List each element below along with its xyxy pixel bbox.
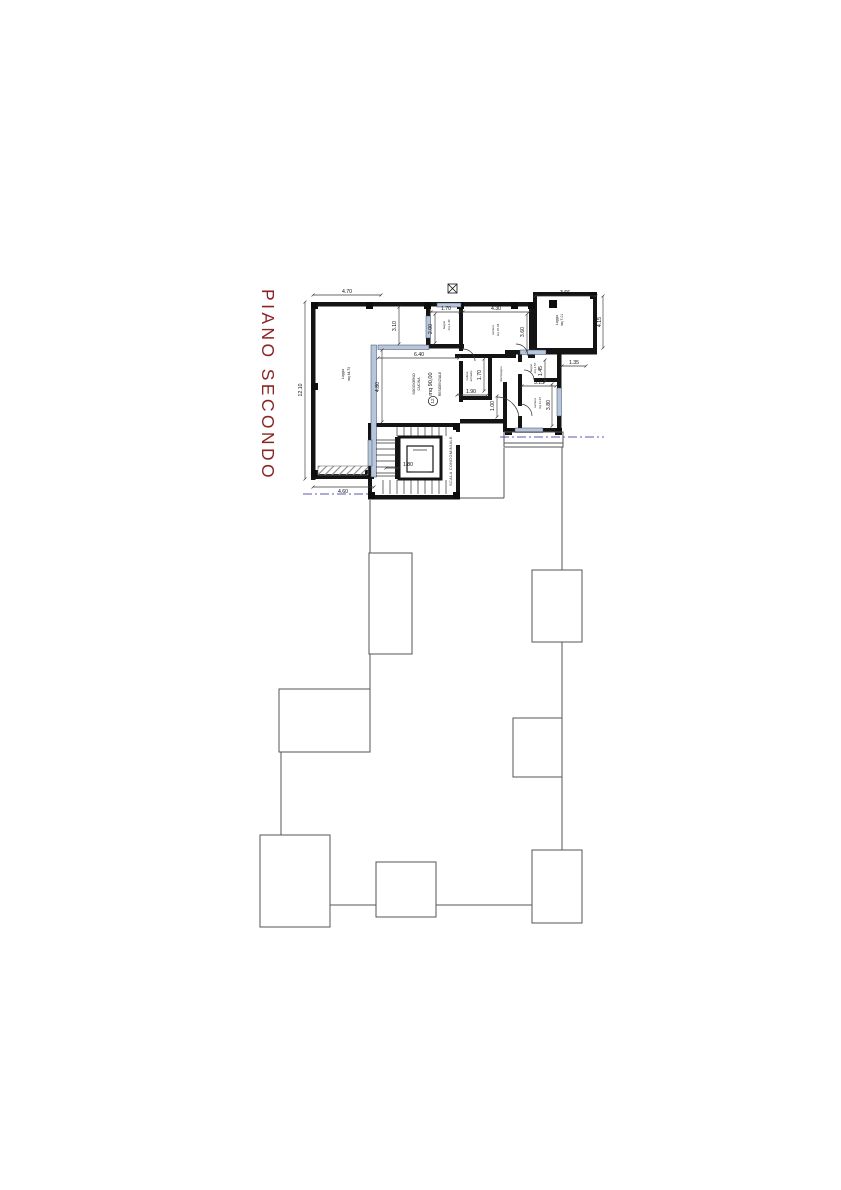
page-title: PIANO SECONDO	[258, 289, 278, 481]
label-residenziale: RESIDENZIALE	[438, 371, 442, 396]
stairs-block	[376, 426, 446, 494]
label-soggiorno-line1: SOGGIORNO	[412, 373, 416, 395]
room-camera-right-area: mq 11.97	[538, 397, 542, 410]
dim-soggiorno-width: 6.40	[414, 352, 424, 358]
dim-cabina-width: 1.90	[466, 389, 476, 395]
drawing-sheet: PIANO SECONDO	[0, 0, 841, 1190]
room-bagno-top-name: bagno	[442, 320, 446, 329]
dim-camera-height: 3.60	[520, 327, 526, 337]
room-bagno-right-area: mq 4.57	[533, 362, 537, 373]
dim-loggia-height: 12.10	[298, 383, 304, 396]
dim-elevator-width: 1.80	[403, 462, 413, 468]
drawing-shape	[313, 295, 596, 487]
label-area-total: mq 90,00	[428, 372, 434, 395]
drawing-shape	[378, 345, 429, 350]
drawing-shape	[281, 447, 562, 905]
drawing-shape	[368, 440, 372, 466]
dim-camera-width: 4.30	[491, 306, 501, 312]
room-disimpegno-name: disimpegno	[499, 366, 503, 382]
dim-loggia-bottom: 4.60	[338, 489, 348, 495]
dim-bagno-height: 2.00	[428, 324, 434, 334]
dim-camera-right-height: 3.80	[546, 400, 552, 410]
dim-cabina-height: 1.70	[477, 370, 483, 380]
dim-bagno-width: 1.70	[441, 306, 451, 312]
drawing-shape	[260, 553, 582, 927]
drawing-shape	[397, 426, 446, 436]
dim-gap-top: 3.10	[392, 321, 398, 331]
room-loggia-right-area: mq 7.01	[560, 314, 564, 326]
room-bagno-top-area: mq 3.40	[447, 319, 451, 330]
room-camera-top-area: mq 15.48	[496, 323, 500, 336]
dim-loggia-right-width: 3.66	[560, 290, 570, 296]
unit-number-text: 12	[430, 398, 435, 404]
parapet-hatch	[318, 466, 368, 475]
dim-soggiorno-height: 4.80	[375, 382, 381, 392]
room-loggia-right-name: Loggia	[555, 315, 559, 325]
room-loggia-left-name: Loggia	[341, 369, 345, 379]
dim-disimpegno-width: 1.00	[490, 401, 496, 411]
dim-offset-right: 1.35	[569, 360, 579, 366]
room-camera-right-name: camera	[533, 398, 537, 408]
dim-bagno-right-width: 3.15	[534, 380, 544, 386]
drawing-shape	[383, 480, 446, 494]
room-camera-top-name: camera	[491, 325, 495, 335]
drawing-shape	[557, 388, 562, 416]
room-cabina-area: armadio	[469, 370, 473, 381]
section-cut-lines	[303, 437, 604, 494]
dim-bagno-right-height: 1.45	[538, 366, 544, 376]
building-footprint-outline	[260, 447, 582, 927]
drawing-shape	[497, 397, 519, 419]
dim-loggia-right-height: 4.15	[597, 317, 603, 327]
unit-number-badge: 12	[428, 396, 437, 405]
chimney-marker	[448, 284, 457, 293]
balcony-right	[504, 432, 563, 447]
dim-loggia-width: 4.70	[342, 289, 352, 295]
drawing-shape	[520, 350, 546, 355]
label-scala-condominiale: SCALA CONDOMINIALE	[449, 436, 453, 486]
label-soggiorno-line2: CUCINA	[417, 377, 421, 391]
drawing-shape	[504, 432, 563, 447]
floor-plan-drawing: PIANO SECONDO	[0, 0, 841, 1190]
room-loggia-left-area: mq 44.73	[347, 367, 351, 381]
drawing-shape	[376, 440, 396, 476]
